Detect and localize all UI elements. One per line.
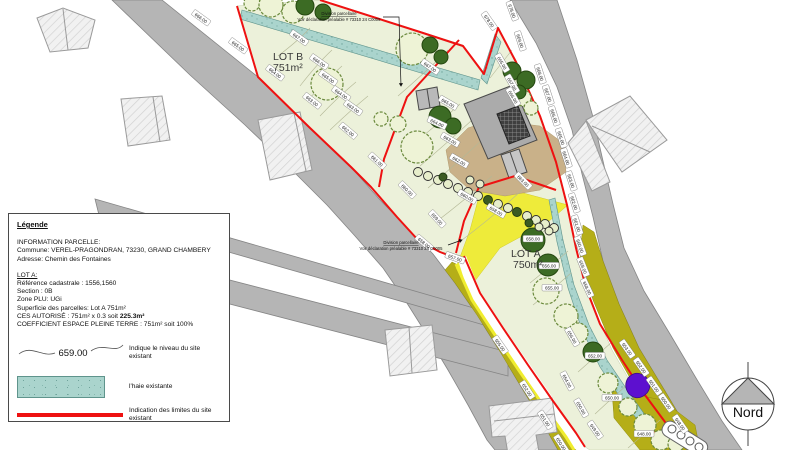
elevation-label: 669.00 [514,30,526,51]
legend-symbol-level: 659.00 Indique le niveau du site existan… [17,338,221,367]
legend-coefficient: COEFFICIENT ESPACE PLEINE TERRE : 751m² … [17,321,221,329]
elevation-label: 662.00 [568,192,580,213]
legend-info-title: INFORMATION PARCELLE: [17,239,221,247]
lot-b-area: 751m² [273,62,303,74]
svg-text:648.00: 648.00 [637,432,651,437]
svg-text:662.00: 662.00 [569,196,578,211]
legend-ces: CES AUTORISÉ : 751m² x 0.3 soit 225.3m² [17,313,221,321]
elevation-label: 667.00 [542,84,554,105]
svg-text:655.00: 655.00 [545,286,559,291]
svg-text:652.00: 652.00 [588,354,602,359]
svg-text:669.00: 669.00 [515,34,524,49]
lot-a-area: 750m² [513,259,543,271]
svg-text:663.00: 663.00 [566,174,575,189]
svg-text:661.00: 661.00 [572,218,581,233]
elevation-label: 650.00 [602,394,622,401]
svg-text:667.00: 667.00 [543,88,552,103]
neighbor-building [121,96,170,146]
legend-zone: Zone PLU: UGi [17,296,221,304]
svg-text:Voir déclaration préalable # 7: Voir déclaration préalable # 73310 24 C0… [298,17,382,22]
svg-text:650.00: 650.00 [605,396,619,401]
elevation-label: 658.00 [523,235,543,242]
legend-section: Section : 0B [17,288,221,296]
neighbor-building [37,8,95,52]
neighbor-building [385,325,437,376]
purple-marker [626,373,650,398]
legend-lot-title: LOT A: [17,272,221,280]
elevation-label: 678.00 [481,11,498,31]
legend-commune: Commune: VEREL-PRAGONDRAN, 73230, GRAND … [17,247,221,255]
legend-superficie: Superficie des parcelles: Lot A 751m² [17,305,221,313]
contour-symbol-icon: 659.00 [17,338,125,362]
legend-symbol-hedge: l'haie existante [17,376,221,398]
elevation-label: 652.00 [585,352,605,359]
elevation-label: 668.00 [534,63,546,84]
elevation-label: 666.00 [191,9,211,26]
legend-reference: Référence cadastrale : 1556,1560 [17,280,221,288]
elevation-label: 665.00 [228,37,248,54]
svg-text:Division parcellaire: Division parcellaire [321,11,357,16]
site-plan-page: { "legend": { "title": "Légende", "info_… [0,0,797,450]
hedge-swatch-icon [17,376,105,398]
svg-text:Division parcellaire: Division parcellaire [383,240,419,245]
elevation-label: 648.00 [634,430,654,437]
legend-panel: Légende INFORMATION PARCELLE: Commune: V… [8,213,230,422]
legend-title: Légende [17,221,221,229]
elevation-label: 655.00 [542,284,562,291]
elevation-label: 666.00 [548,105,560,126]
legend-adresse: Adresse: Chemin des Fontaines [17,256,221,264]
compass-label: Nord [733,404,763,420]
svg-text:659.00: 659.00 [58,348,87,359]
svg-text:666.00: 666.00 [549,109,558,124]
svg-text:656.00: 656.00 [542,264,556,269]
svg-text:668.00: 668.00 [535,67,544,82]
svg-text:Voir déclaration préalable # 7: Voir déclaration préalable # 73310 24 C0… [360,246,444,251]
red-line-icon [17,413,123,417]
legend-symbol-limits: Indication des limites du site existant [17,407,221,423]
svg-text:658.00: 658.00 [526,237,540,242]
elevation-label: 663.00 [565,170,577,191]
